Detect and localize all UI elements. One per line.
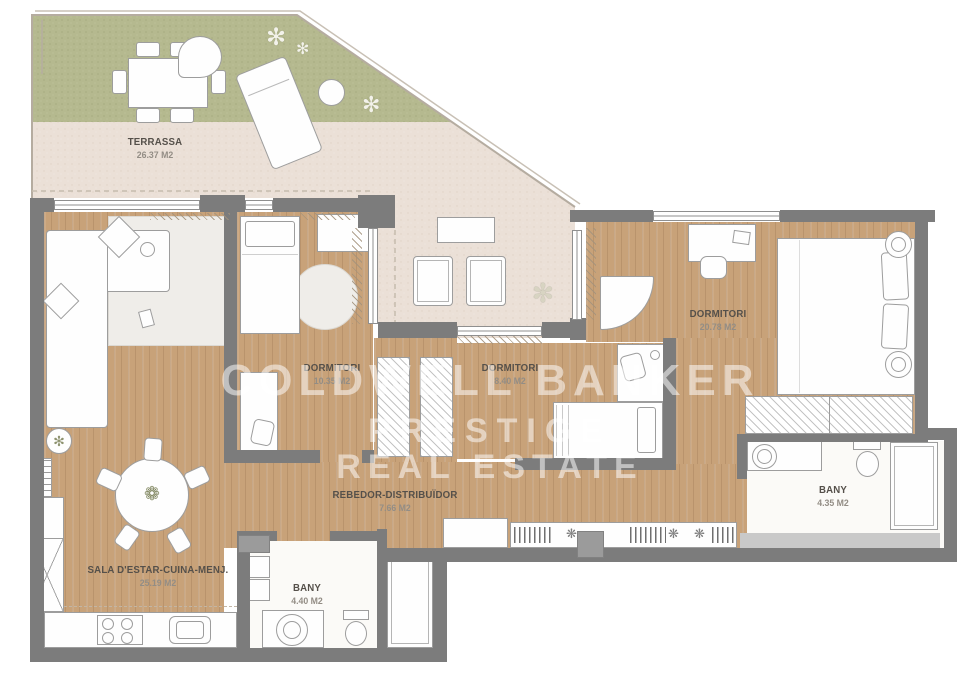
- plant-icon: ✻: [296, 42, 309, 58]
- curtain-hatch: [150, 213, 230, 220]
- floor-lamp: [140, 242, 155, 257]
- toilet-bowl: [345, 621, 367, 646]
- room-name: SALA D'ESTAR-CUINA-MENJ.: [75, 564, 241, 576]
- bedroom2-desk-lamp: [650, 350, 660, 360]
- wall: [378, 322, 457, 338]
- worktop-dashed-line: [64, 606, 237, 607]
- wall: [362, 450, 374, 463]
- terrace-armchair: [413, 256, 453, 306]
- wall: [433, 548, 447, 662]
- wall: [224, 212, 237, 462]
- bedroom1-pillow: [245, 221, 295, 247]
- wall: [663, 338, 676, 466]
- shower-stall-inner: [391, 557, 429, 644]
- bedroom2-pillow: [637, 407, 656, 453]
- nightstand-detail: [891, 237, 906, 252]
- wall: [737, 434, 928, 442]
- books: [514, 527, 554, 543]
- wall-pier: [570, 318, 586, 340]
- kitchen-sink-basin: [176, 621, 204, 639]
- bathroom2-basin-inner: [757, 449, 772, 464]
- bedroom2-blanket: [556, 405, 572, 456]
- dining-chair: [143, 437, 163, 461]
- room-name: BANY: [787, 484, 879, 496]
- wall: [224, 450, 320, 463]
- stove-burner: [102, 632, 114, 644]
- plant-icon: ✻: [53, 433, 65, 449]
- room-label-rebedor: REBEDOR-DISTRIBUÏDOR 7.66 M2: [321, 489, 468, 514]
- bedroom1-round-rug: [292, 264, 358, 330]
- entry-cabinet: [443, 518, 508, 548]
- armchair-seat: [417, 260, 449, 302]
- armchair-seat: [470, 260, 502, 302]
- room-label-bany-2: BANY 4.35 M2: [787, 484, 879, 509]
- terrace-side-table: [318, 79, 345, 106]
- curtain-hatch: [586, 228, 596, 320]
- window: [457, 326, 542, 336]
- bedroom3-pillow: [881, 303, 909, 349]
- shower-tray-inner: [894, 446, 934, 526]
- room-area: 25.19 M2: [75, 578, 241, 589]
- curtain-hatch: [300, 213, 355, 220]
- curtain-hatch: [457, 336, 542, 344]
- room-name: DORMITORI: [663, 308, 773, 320]
- stove-burner: [121, 632, 133, 644]
- wall: [515, 458, 676, 470]
- plant-icon: ✻: [362, 94, 380, 116]
- bedroom1-desk: [240, 372, 278, 458]
- wall: [44, 198, 54, 212]
- toilet-bowl: [856, 451, 879, 477]
- room-area: 8.40 M2: [455, 376, 565, 387]
- sofa-chaise: [46, 230, 108, 428]
- toilet-tank: [343, 610, 369, 620]
- bedroom1-blanket-line: [242, 254, 298, 255]
- window: [368, 228, 378, 324]
- room-name: REBEDOR-DISTRIBUÏDOR: [321, 489, 468, 501]
- room-name: TERRASSA: [100, 136, 210, 148]
- bedroom3-desk-chair: [700, 256, 727, 279]
- terrace-grass: [32, 15, 452, 122]
- terrace-parasol: [178, 36, 222, 78]
- structural-column: [238, 535, 270, 553]
- decor-flower-icon: ❋: [668, 527, 679, 540]
- terrace-coffee-table: [437, 217, 495, 243]
- room-area: 20.78 M2: [663, 322, 773, 333]
- room-label-bany-1: BANY 4.40 M2: [261, 582, 353, 607]
- bedroom3-laptop: [732, 230, 751, 245]
- books: [712, 527, 734, 543]
- structural-column: [577, 531, 604, 558]
- wall-pier: [200, 195, 245, 212]
- wall-pier: [358, 195, 395, 228]
- room-label-terrassa: TERRASSA 26.37 M2: [100, 136, 210, 161]
- bedroom3-closet: [745, 396, 913, 434]
- plant-icon: ✻: [532, 280, 554, 306]
- room-label-dormitori-1: DORMITORI 10.35 M2: [277, 362, 387, 387]
- room-name: BANY: [261, 582, 353, 594]
- stove-burner: [121, 618, 133, 630]
- nightstand-detail: [891, 357, 906, 372]
- wall: [273, 198, 363, 212]
- bathroom1-basin-inner: [283, 621, 301, 639]
- window: [572, 230, 582, 320]
- room-area: 26.37 M2: [100, 150, 210, 161]
- room-label-sala: SALA D'ESTAR-CUINA-MENJ. 25.19 M2: [75, 564, 241, 589]
- wall: [915, 210, 928, 440]
- shower-tray: [890, 442, 938, 530]
- wardrobe: [420, 357, 453, 457]
- wall: [30, 198, 44, 662]
- wall: [385, 548, 957, 562]
- dining-table: ❁: [115, 458, 189, 532]
- decor-flower-icon: ❋: [694, 527, 705, 540]
- centerpiece-plant-icon: ❁: [144, 484, 160, 505]
- stove-burner: [102, 618, 114, 630]
- room-label-dormitori-3: DORMITORI 20.78 M2: [663, 308, 773, 333]
- closet-divider: [829, 397, 830, 433]
- room-area: 4.40 M2: [261, 596, 353, 607]
- lounger-headrest-line: [248, 79, 289, 96]
- window: [54, 200, 200, 210]
- window: [653, 211, 780, 221]
- floor-passage: [676, 430, 737, 464]
- terrace-chair: [112, 70, 127, 94]
- wall: [944, 428, 957, 562]
- shower-stall: [387, 553, 433, 648]
- curtain-hatch: [352, 228, 362, 324]
- bedroom3-blanket-line: [799, 240, 800, 393]
- room-label-dormitori-2: DORMITORI 8.40 M2: [455, 362, 565, 387]
- books: [630, 527, 666, 543]
- wall: [780, 210, 935, 222]
- plant-icon: ✻: [266, 26, 286, 50]
- room-name: DORMITORI: [277, 362, 387, 374]
- decor-flower-icon: ❋: [566, 527, 577, 540]
- room-area: 10.35 M2: [277, 376, 387, 387]
- room-name: DORMITORI: [455, 362, 565, 374]
- wall: [377, 529, 387, 662]
- terrace-chair: [170, 108, 194, 123]
- wall: [737, 437, 747, 479]
- wall: [570, 210, 653, 222]
- bathroom2-ledge: [740, 533, 940, 548]
- terrace-armchair: [466, 256, 506, 306]
- room-area: 4.35 M2: [787, 498, 879, 509]
- plant-pot: ✻: [46, 428, 72, 454]
- bedroom3-pillow: [881, 251, 909, 300]
- terrace-chair: [136, 42, 160, 57]
- terrace-chair: [136, 108, 160, 123]
- window: [245, 200, 273, 210]
- room-area: 7.66 M2: [321, 503, 468, 514]
- floorplan: ✻ ✻ ✻ ✻ ✻ ❁: [0, 0, 980, 688]
